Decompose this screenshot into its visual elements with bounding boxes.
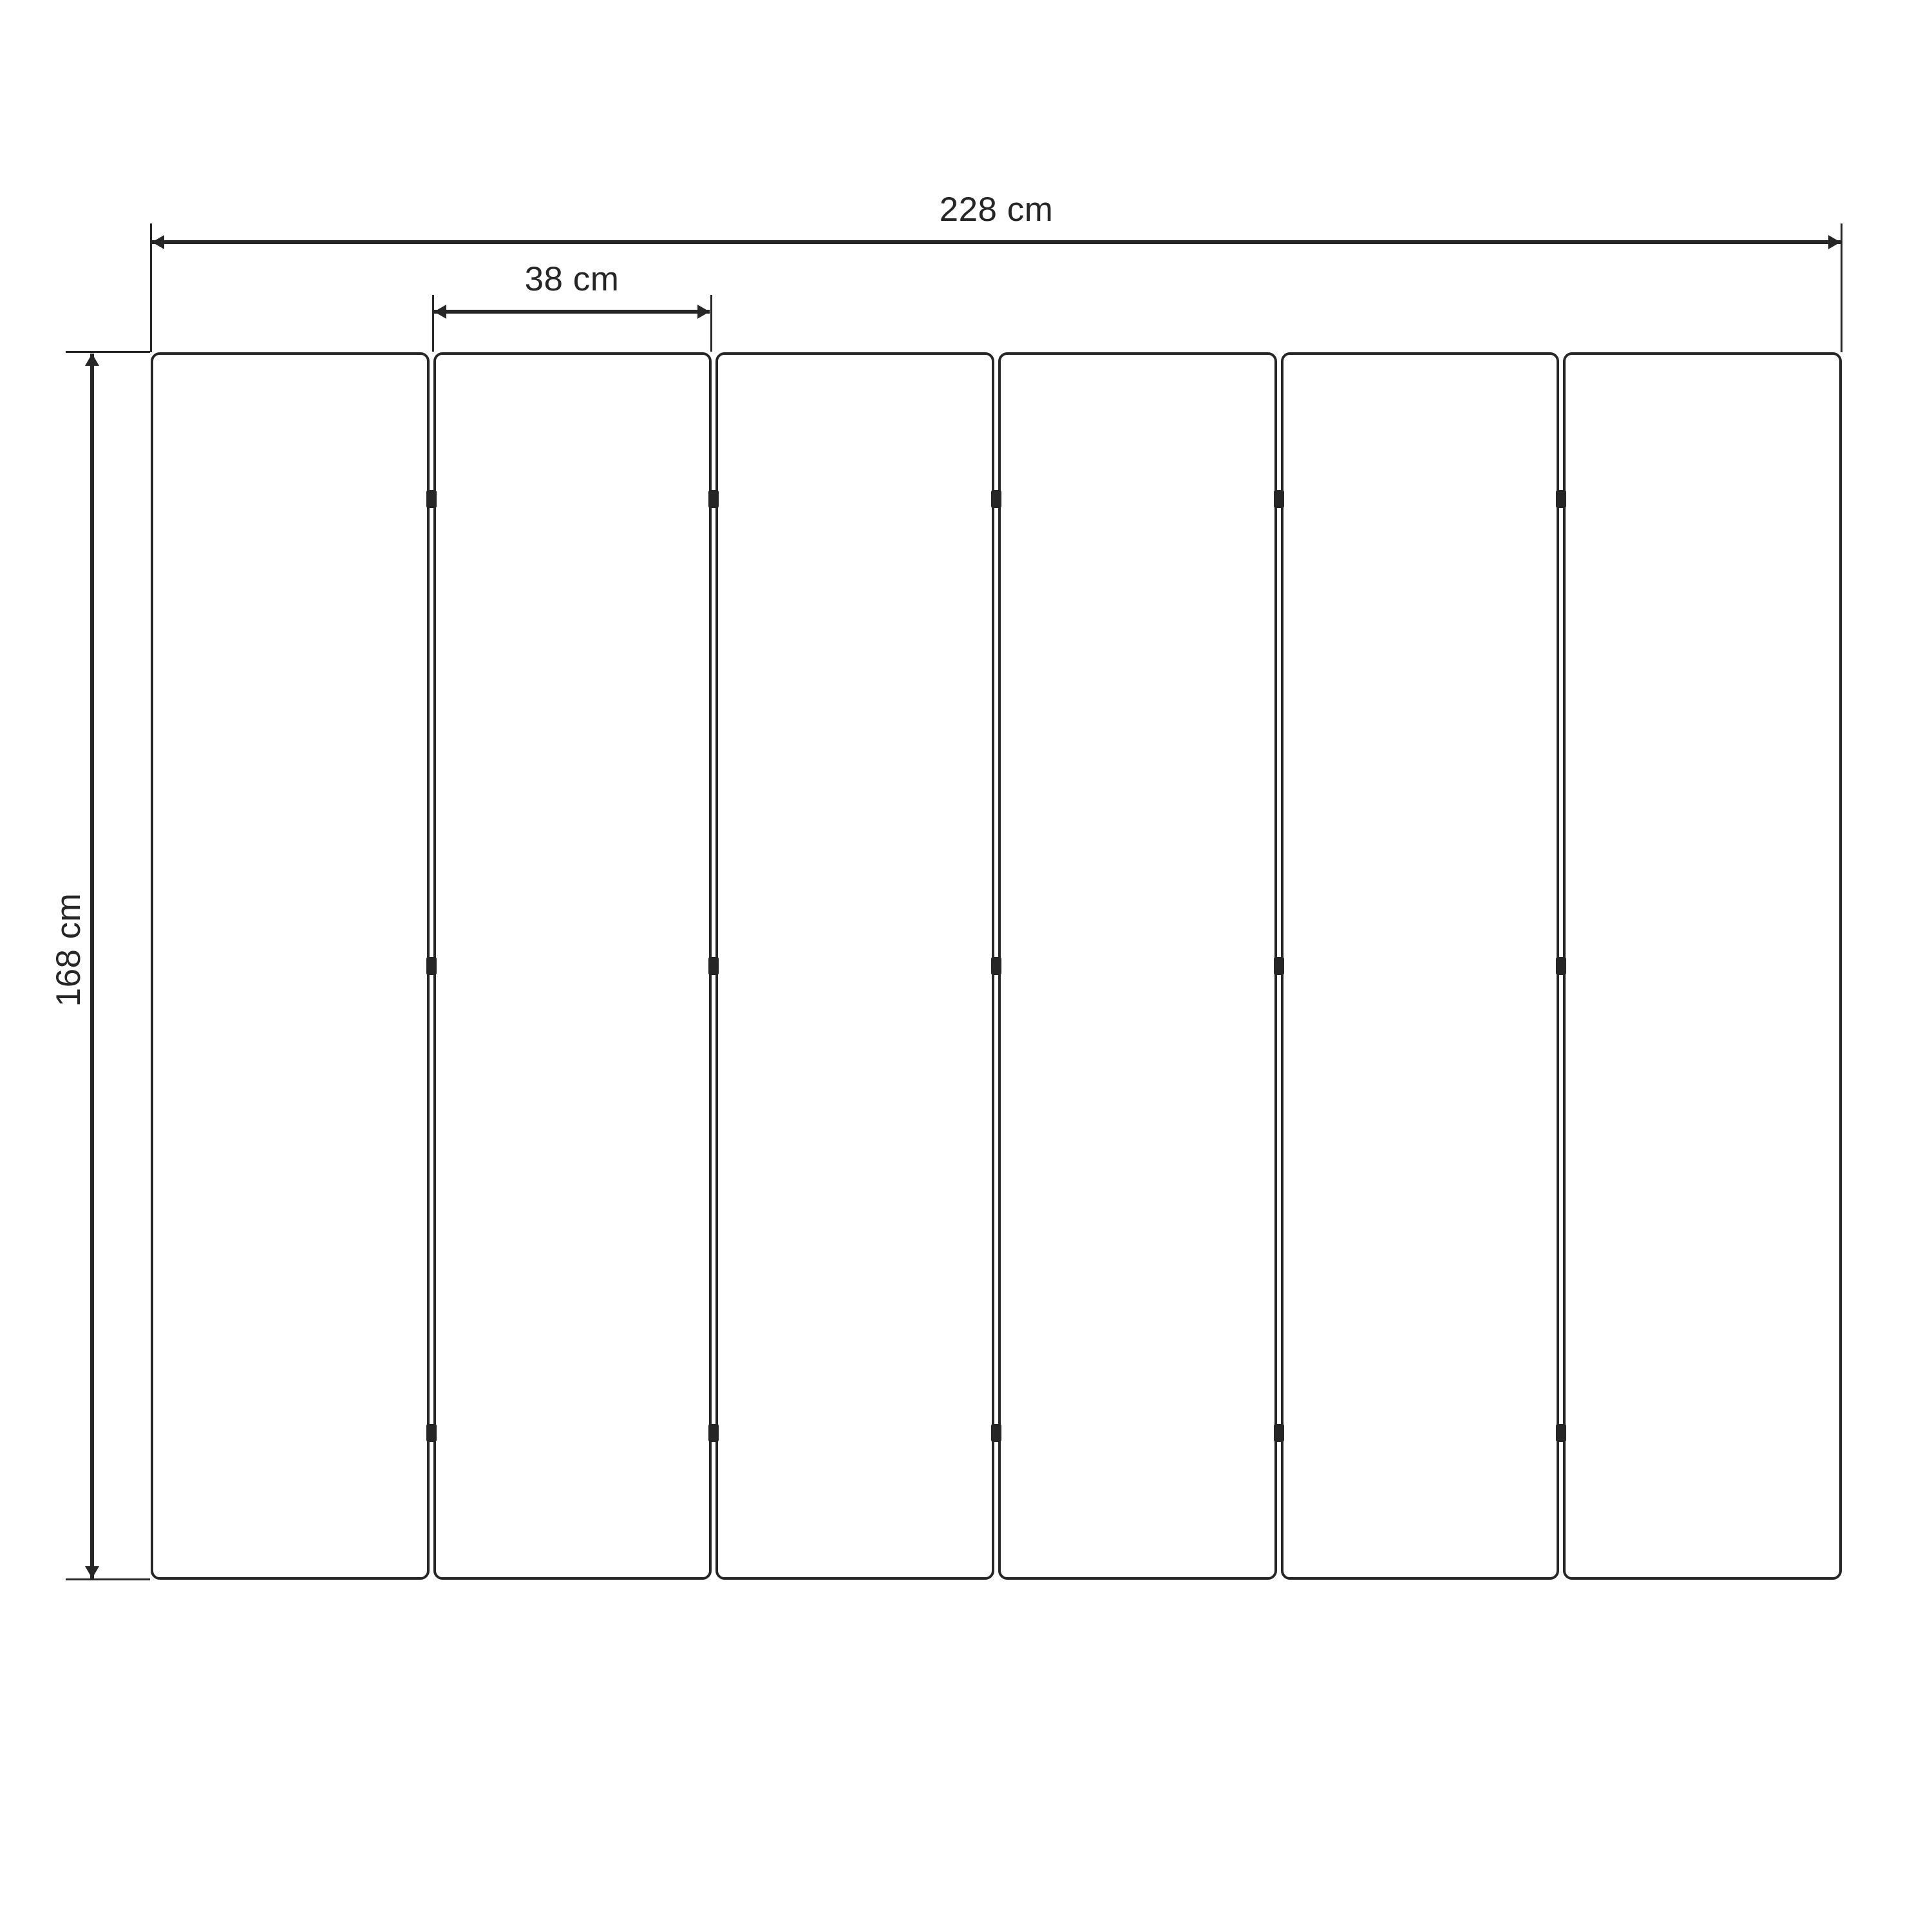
panel [715,352,994,1580]
hinge-mark [1274,490,1284,508]
hinge-mark [426,490,437,508]
arrow-up-icon [85,354,99,366]
panel [151,352,430,1580]
extension-line [432,295,434,352]
hinge-mark [708,957,719,975]
hinge-mark [1274,957,1284,975]
hinge-mark [991,1424,1001,1442]
panel [998,352,1277,1580]
panel [1281,352,1560,1580]
panel [1563,352,1842,1580]
hinge-mark [1556,490,1566,508]
hinge-mark [1556,1424,1566,1442]
arrow-left-icon [434,305,446,319]
total-width-label: 228 cm [900,193,1093,227]
hinge-mark [708,490,719,508]
hinge-mark [991,490,1001,508]
hinge-mark [426,957,437,975]
extension-line [710,295,712,352]
extension-line [1841,223,1842,352]
arrow-right-icon [697,305,710,319]
extension-line [66,351,150,353]
hinge-mark [426,1424,437,1442]
height-dimension-line [90,354,94,1578]
extension-line [66,1578,150,1580]
panel [433,352,712,1580]
hinge-mark [991,957,1001,975]
total-width-dimension-line [152,240,1841,244]
arrow-left-icon [152,235,164,249]
hinge-mark [1274,1424,1284,1442]
panel-width-dimension-line [434,310,710,314]
arrow-down-icon [85,1566,99,1578]
hinge-mark [1556,957,1566,975]
panel-width-label: 38 cm [475,262,668,297]
diagram-canvas: 228 cm 38 cm 168 cm [0,0,1932,1932]
hinge-mark [708,1424,719,1442]
height-label: 168 cm [52,853,86,1046]
arrow-right-icon [1828,235,1841,249]
